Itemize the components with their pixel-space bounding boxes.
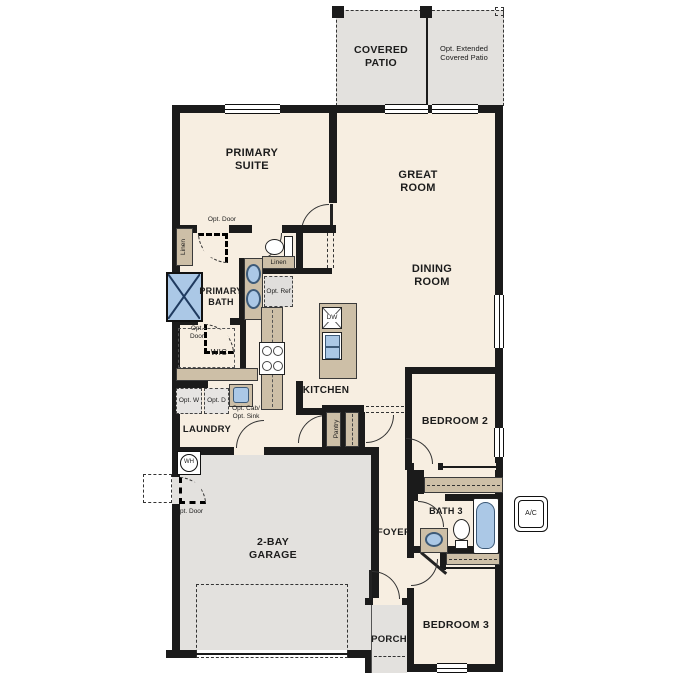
suite-optdoor-opening	[197, 225, 229, 233]
bath3-label: BATH 3	[424, 505, 468, 517]
bedroom3-window	[437, 663, 467, 673]
hall-opening-dash-1	[366, 406, 404, 407]
stove	[259, 342, 285, 375]
island-sink-basin-1	[325, 335, 340, 347]
wall-wc-east	[296, 225, 303, 274]
opt-sink-label: Opt. Sink	[227, 413, 265, 421]
laundry-sink	[233, 387, 249, 403]
patio-divider-wall	[426, 10, 428, 106]
foyer-label: FOYER	[372, 527, 416, 539]
bath-sink-1	[246, 264, 261, 284]
bedroom2-label: BEDROOM 2	[410, 414, 500, 428]
pantry-label: Pantry	[331, 412, 343, 446]
wc-door-opening	[252, 225, 282, 233]
extended-patio-label: Opt. Extended Covered Patio	[430, 39, 498, 67]
hall-closet-rod	[352, 414, 353, 445]
garage-opt-door-label: Opt. Door	[174, 503, 204, 521]
dining-window	[494, 295, 504, 348]
bath3-door-opening	[418, 494, 445, 501]
opt-cab-label: Opt. Cab/	[227, 405, 265, 413]
bedroom2-window	[494, 428, 504, 457]
patio-post-right	[420, 6, 432, 18]
burner-1	[262, 346, 272, 356]
bedroom3-closet-slider	[446, 567, 500, 569]
dining-room-label: DINING ROOM	[400, 260, 464, 292]
bedroom3-label: BEDROOM 3	[410, 618, 502, 632]
island-sink-unit	[322, 332, 342, 360]
linen-horizontal-label: Linen	[262, 256, 295, 269]
wall-pantry-right	[359, 412, 365, 447]
opt-ref-label: Opt. Ref	[266, 278, 291, 305]
great-room-window	[432, 104, 478, 114]
suite-opt-door-label: Opt. Door	[202, 215, 242, 224]
wall-pantry-top	[322, 405, 364, 412]
covered-patio-label: COVERED PATIO	[346, 42, 416, 72]
opt-dryer-label: Opt. D	[206, 390, 227, 412]
burner-3	[262, 361, 272, 371]
bedroom2-door-opening	[411, 463, 438, 470]
patio-corner-marker	[495, 7, 504, 16]
bath3-toilet-base	[455, 540, 468, 549]
wall-closet-block	[414, 470, 424, 496]
garage-entry-opening	[234, 447, 264, 455]
wall-suite-great-divider	[329, 105, 337, 203]
opt-door-landing	[143, 474, 172, 503]
linen-vertical-label: Linen	[178, 230, 190, 264]
wall-garage-top	[172, 447, 372, 455]
wic-label: WIC	[201, 347, 237, 359]
bedroom2-closet-shelf	[424, 477, 503, 493]
porch-label: PORCH	[366, 634, 412, 646]
cased-opening-dash-1	[327, 233, 328, 268]
laundry-label: LAUNDRY	[176, 423, 238, 436]
bath3-sink	[425, 532, 443, 547]
dishwasher-label: DW	[324, 314, 340, 322]
hall-opening-dash-2	[366, 412, 404, 413]
wic-opt-door-label: Opt. Door	[184, 324, 210, 342]
porch-step-dash	[374, 656, 405, 657]
kitchen-label: KITCHEN	[296, 385, 356, 398]
wall-right	[495, 105, 503, 672]
primary-suite-window	[225, 104, 280, 114]
wall-bedroom2-top	[405, 367, 503, 374]
toilet-tank	[284, 236, 293, 257]
exterior-mask	[164, 658, 370, 687]
front-door-opening	[373, 598, 402, 605]
primary-bath-label: PRIMARY BATH	[194, 284, 248, 310]
bedroom2-closet-slider	[443, 466, 496, 468]
toilet-bowl	[265, 239, 284, 255]
ac-label: A/C	[518, 500, 544, 528]
bath3-toilet-bowl	[453, 519, 470, 540]
garage-label: 2-BAY GARAGE	[241, 534, 305, 564]
burner-4	[273, 361, 283, 371]
floor-plan: COVERED PATIO Opt. Extended Covered Pati…	[0, 0, 687, 687]
wall-wic-east	[240, 318, 246, 370]
patio-post-left	[332, 6, 344, 18]
opt-washer-label: Opt. W	[178, 390, 200, 412]
bath3-tub	[473, 498, 499, 554]
bath3-tub-basin	[476, 502, 495, 549]
burner-2	[273, 346, 283, 356]
dishwasher-box: DW	[322, 307, 342, 329]
garage-door-outline	[196, 584, 348, 658]
bedroom3-closet-rod	[449, 559, 497, 560]
island-sink-basin-2	[325, 347, 340, 359]
laundry-upper-cabinets	[176, 368, 258, 381]
bath-sink-2	[246, 289, 261, 309]
cased-opening-dash-2	[333, 233, 334, 268]
great-room-slider-door	[385, 104, 428, 114]
bedroom3-closet-shelf	[446, 553, 500, 565]
great-room-label: GREAT ROOM	[386, 166, 450, 198]
primary-suite-label: PRIMARY SUITE	[212, 144, 292, 176]
water-heater-label: WH	[180, 454, 198, 472]
bedroom2-closet-rod	[427, 485, 500, 486]
wall-wic-laundry	[172, 381, 208, 388]
